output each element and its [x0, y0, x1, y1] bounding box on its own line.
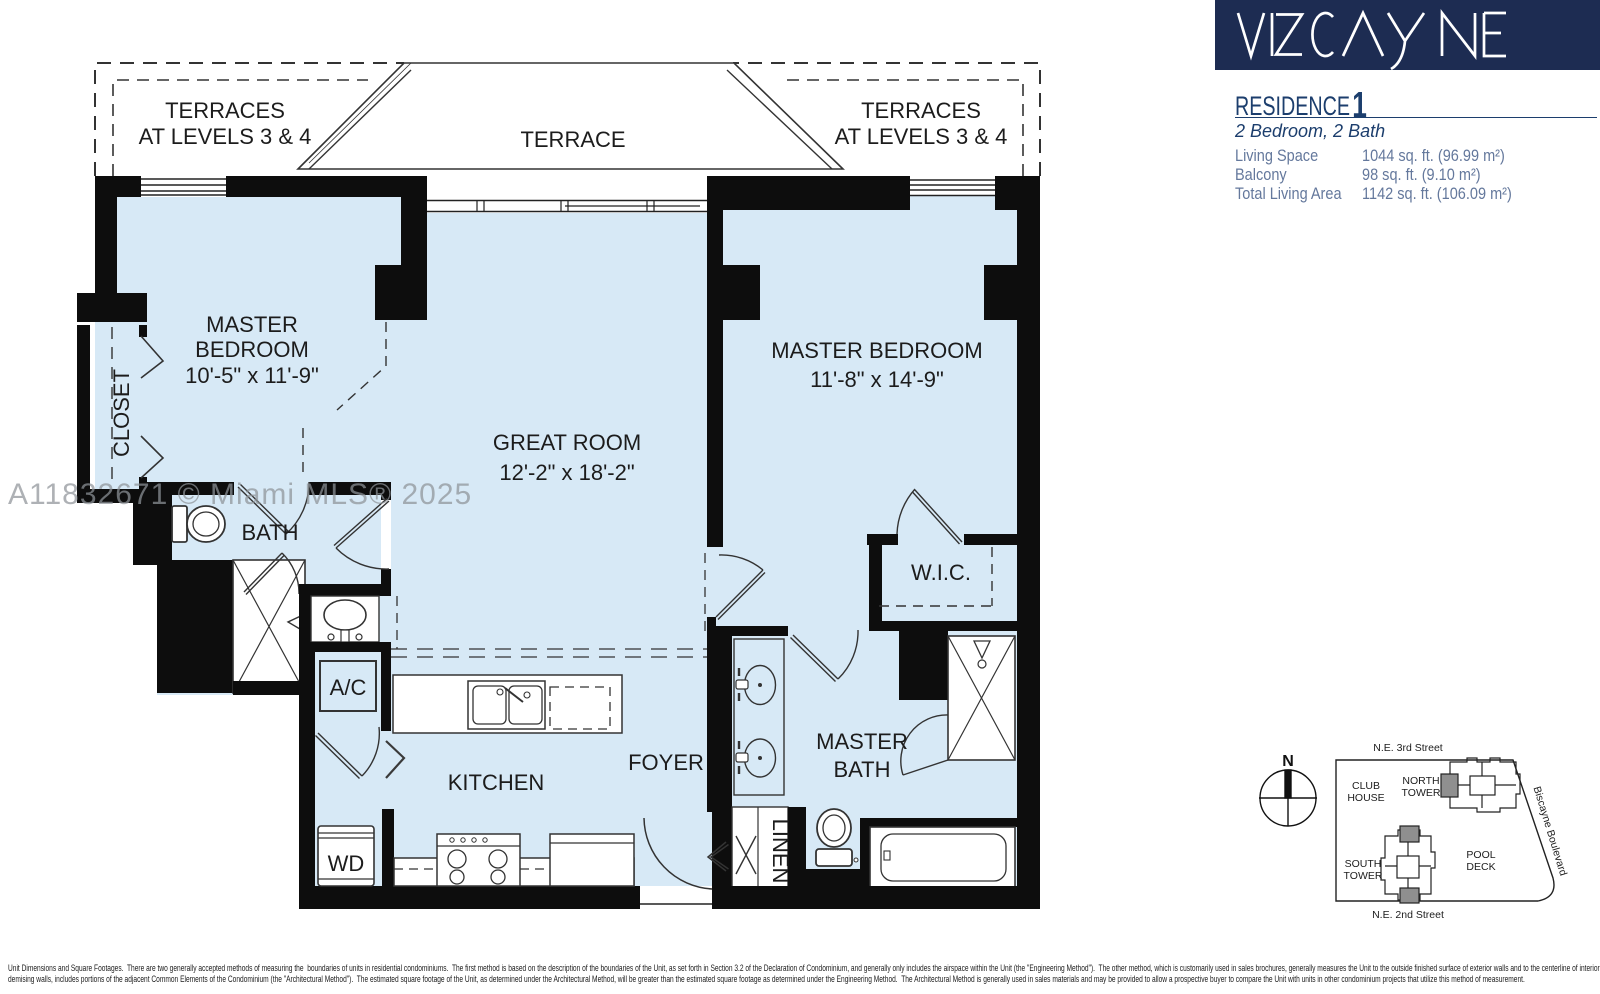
svg-text:POOL: POOL — [1466, 849, 1495, 861]
svg-text:TOWER: TOWER — [1344, 870, 1383, 882]
svg-text:CLOSET: CLOSET — [109, 369, 134, 457]
svg-text:TERRACES: TERRACES — [165, 98, 285, 123]
svg-text:BATH: BATH — [833, 757, 890, 782]
svg-text:11'-8" x 14'-9": 11'-8" x 14'-9" — [810, 367, 944, 392]
svg-text:Biscayne Boulevard: Biscayne Boulevard — [1531, 785, 1570, 877]
svg-text:TERRACE: TERRACE — [520, 127, 625, 152]
svg-text:SOUTH: SOUTH — [1345, 858, 1382, 870]
svg-text:A11832671 © Miami MLS® 2025: A11832671 © Miami MLS® 2025 — [8, 478, 472, 511]
svg-text:HOUSE: HOUSE — [1347, 792, 1384, 804]
svg-text:MASTER BEDROOM: MASTER BEDROOM — [771, 338, 982, 363]
svg-text:KITCHEN: KITCHEN — [448, 770, 545, 795]
svg-text:TOWER: TOWER — [1402, 787, 1441, 799]
svg-text:10'-5" x 11'-9": 10'-5" x 11'-9" — [185, 363, 319, 388]
svg-text:TERRACES: TERRACES — [861, 98, 981, 123]
svg-text:N.E. 2nd Street: N.E. 2nd Street — [1372, 909, 1444, 921]
svg-text:FOYER: FOYER — [628, 750, 704, 775]
svg-text:DECK: DECK — [1466, 861, 1495, 873]
svg-text:12'-2" x 18'-2": 12'-2" x 18'-2" — [499, 460, 634, 485]
svg-text:MASTER: MASTER — [206, 312, 298, 337]
svg-text:AT LEVELS 3 & 4: AT LEVELS 3 & 4 — [139, 124, 312, 149]
svg-text:BATH: BATH — [241, 520, 298, 545]
svg-text:NORTH: NORTH — [1402, 775, 1439, 787]
svg-text:WD: WD — [328, 851, 365, 876]
svg-text:A/C: A/C — [330, 675, 367, 700]
svg-text:N: N — [1282, 753, 1294, 770]
svg-text:MASTER: MASTER — [816, 729, 908, 754]
svg-text:BEDROOM: BEDROOM — [195, 337, 309, 362]
svg-text:W.I.C.: W.I.C. — [911, 560, 971, 585]
svg-text:CLUB: CLUB — [1352, 780, 1380, 792]
svg-text:N.E. 3rd Street: N.E. 3rd Street — [1373, 742, 1443, 754]
svg-text:AT LEVELS 3 & 4: AT LEVELS 3 & 4 — [835, 124, 1008, 149]
svg-text:GREAT ROOM: GREAT ROOM — [493, 430, 641, 455]
